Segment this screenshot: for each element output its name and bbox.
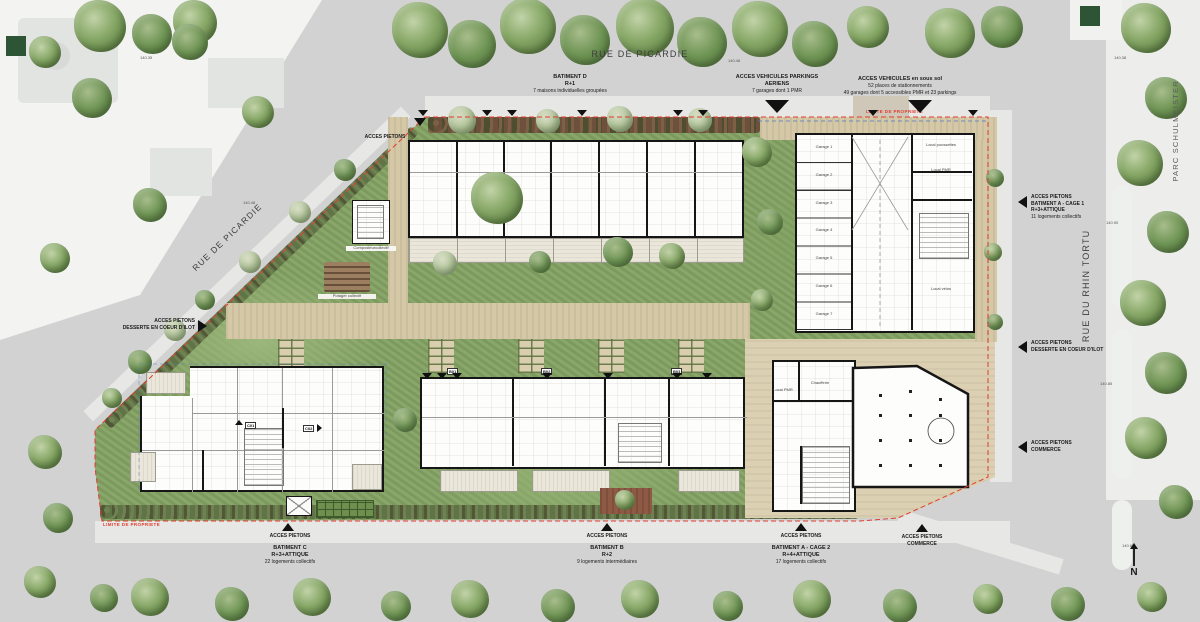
compass-arrowhead <box>1130 543 1138 549</box>
acces-commerce-right-arrow <box>1018 441 1027 453</box>
acces-pietons-top-arrow <box>414 118 426 126</box>
access-marker <box>673 110 683 116</box>
access-marker <box>577 110 587 116</box>
access-marker <box>418 110 428 116</box>
acces-batiment-b-arrow <box>601 523 613 531</box>
access-marker <box>422 373 432 379</box>
site-plan: Composteurcollectif Potager collectif Ga… <box>0 0 1200 622</box>
access-marker <box>868 110 878 116</box>
acces-vehicules-aeriens-arrow <box>765 100 789 113</box>
access-marker <box>702 373 712 379</box>
acces-vehicules-sous-sol-arrow <box>908 100 932 113</box>
acces-desserte-right-arrow <box>1018 341 1027 353</box>
access-marker <box>507 110 517 116</box>
acces-batiment-c-arrow <box>282 523 294 531</box>
access-marker <box>452 373 462 379</box>
access-marker <box>603 373 613 379</box>
access-marker <box>437 373 447 379</box>
access-marker <box>672 373 682 379</box>
access-marker <box>698 110 708 116</box>
access-markers-layer <box>0 0 1200 622</box>
acces-desserte-left-arrow <box>198 320 207 332</box>
access-marker <box>542 373 552 379</box>
acces-cage1-arrow <box>1018 196 1027 208</box>
access-marker <box>968 110 978 116</box>
access-marker <box>482 110 492 116</box>
acces-commerce-bottom-arrow <box>916 524 928 532</box>
acces-batiment-a2-arrow <box>795 523 807 531</box>
